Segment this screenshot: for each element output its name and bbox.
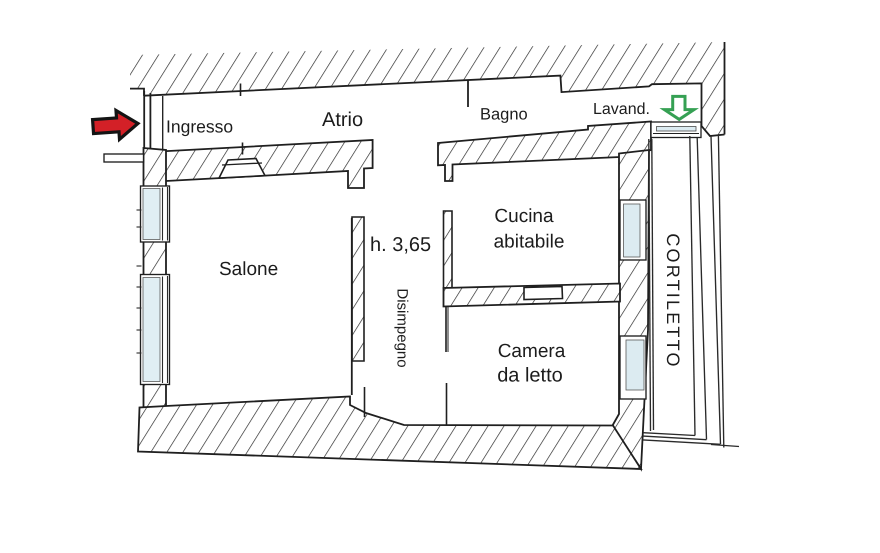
svg-text:Ingresso: Ingresso <box>166 117 233 137</box>
svg-text:h. 3,65: h. 3,65 <box>370 234 431 256</box>
svg-text:Lavand.: Lavand. <box>593 101 650 118</box>
svg-text:Bagno: Bagno <box>480 106 528 124</box>
svg-text:da letto: da letto <box>497 365 563 387</box>
svg-text:Camera: Camera <box>498 341 566 362</box>
svg-text:CORTILETTO: CORTILETTO <box>663 233 683 368</box>
svg-text:abitabile: abitabile <box>494 232 565 253</box>
svg-text:Cucina: Cucina <box>494 206 554 227</box>
svg-text:Disimpegno: Disimpegno <box>394 288 411 367</box>
svg-text:Salone: Salone <box>219 259 278 280</box>
svg-text:Atrio: Atrio <box>322 109 363 131</box>
